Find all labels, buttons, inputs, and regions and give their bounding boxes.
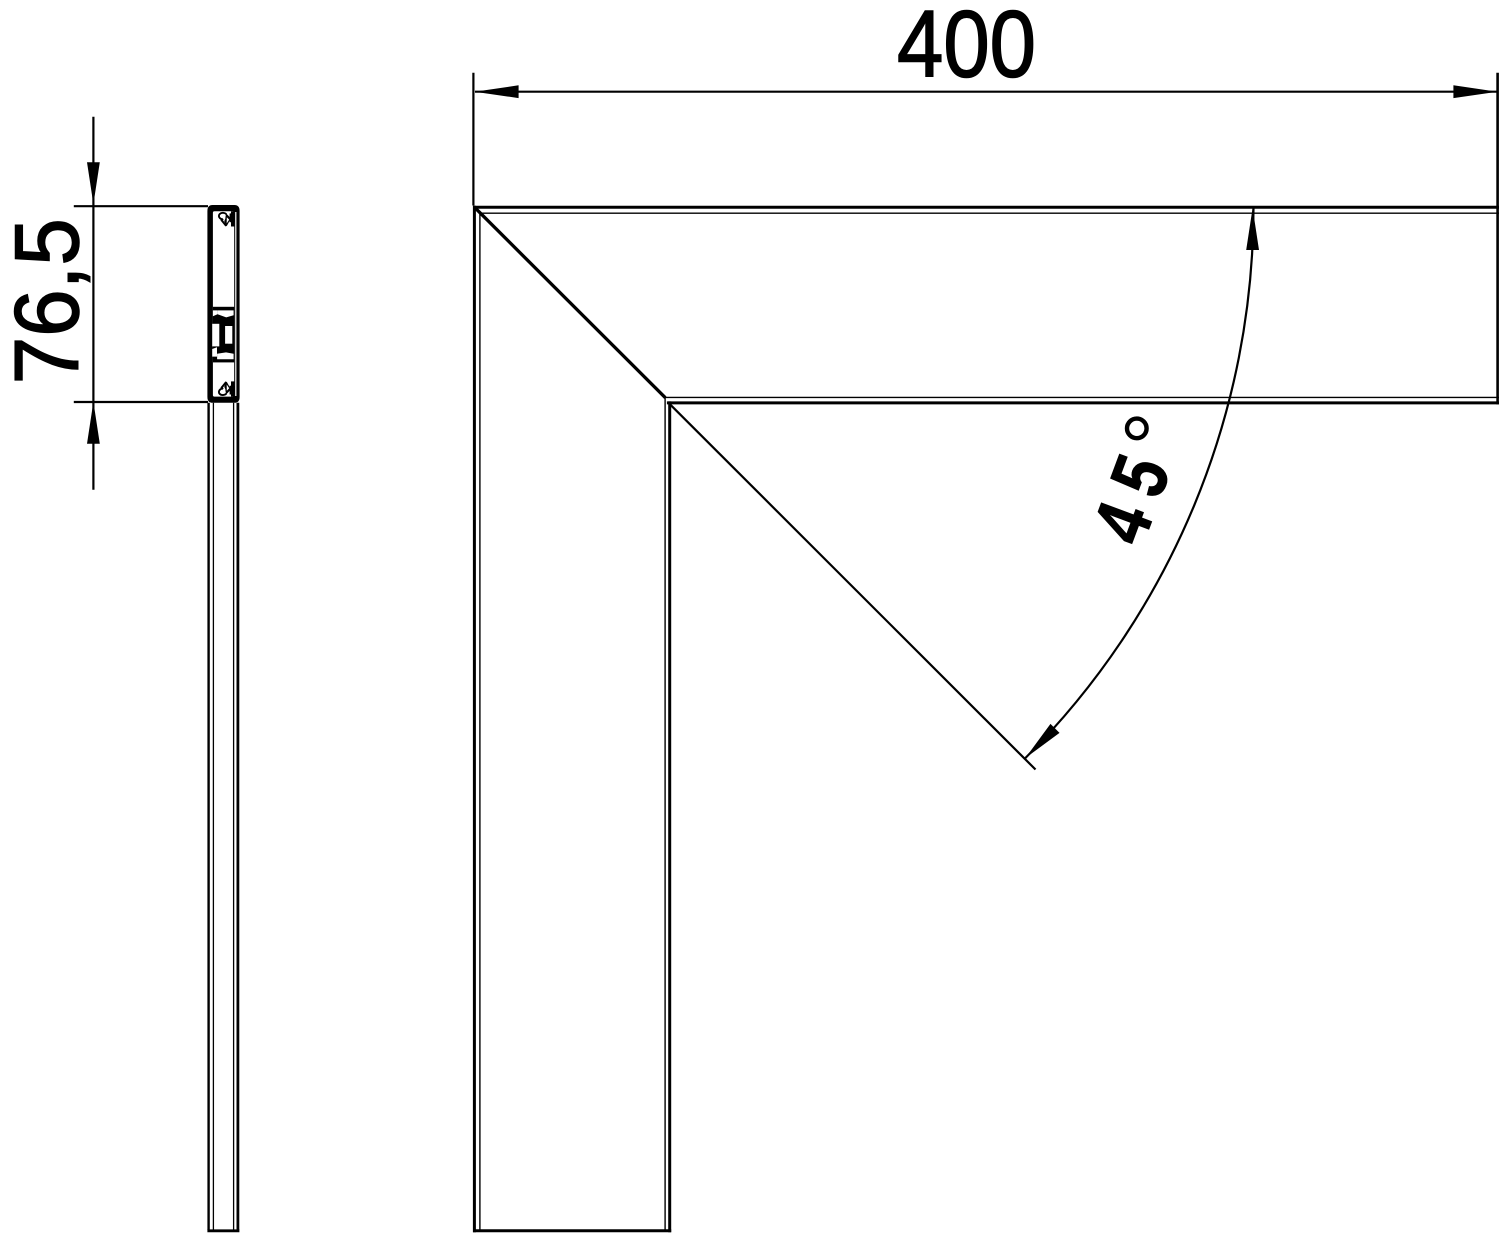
svg-text:76,5: 76,5	[0, 218, 98, 384]
svg-text:400: 400	[897, 0, 1036, 98]
